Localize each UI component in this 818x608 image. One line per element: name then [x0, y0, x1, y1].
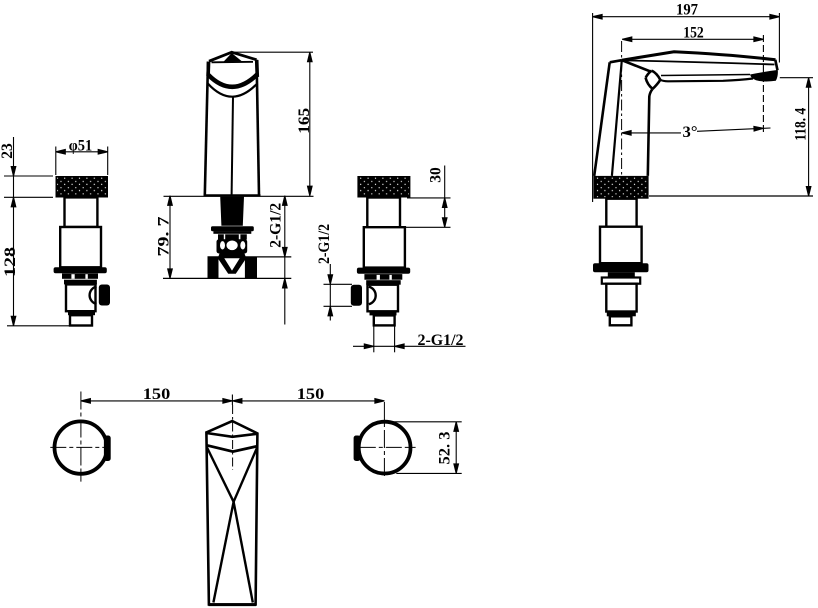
svg-text:152: 152 — [683, 24, 704, 41]
svg-text:165: 165 — [296, 108, 313, 134]
svg-text:23: 23 — [0, 143, 16, 159]
svg-text:150: 150 — [297, 386, 325, 403]
svg-text:φ51: φ51 — [69, 138, 93, 155]
svg-text:197: 197 — [676, 1, 698, 18]
svg-text:52. 3: 52. 3 — [437, 431, 454, 464]
svg-text:2-G1/2: 2-G1/2 — [268, 203, 285, 248]
svg-text:79. 7: 79. 7 — [156, 216, 173, 256]
svg-text:3°: 3° — [683, 124, 698, 141]
svg-text:128: 128 — [2, 247, 19, 277]
svg-text:118. 4: 118. 4 — [793, 108, 810, 141]
svg-text:2-G1/2: 2-G1/2 — [418, 332, 464, 349]
svg-text:2-G1/2: 2-G1/2 — [316, 224, 333, 264]
svg-text:150: 150 — [143, 386, 171, 403]
svg-text:30: 30 — [428, 167, 445, 183]
